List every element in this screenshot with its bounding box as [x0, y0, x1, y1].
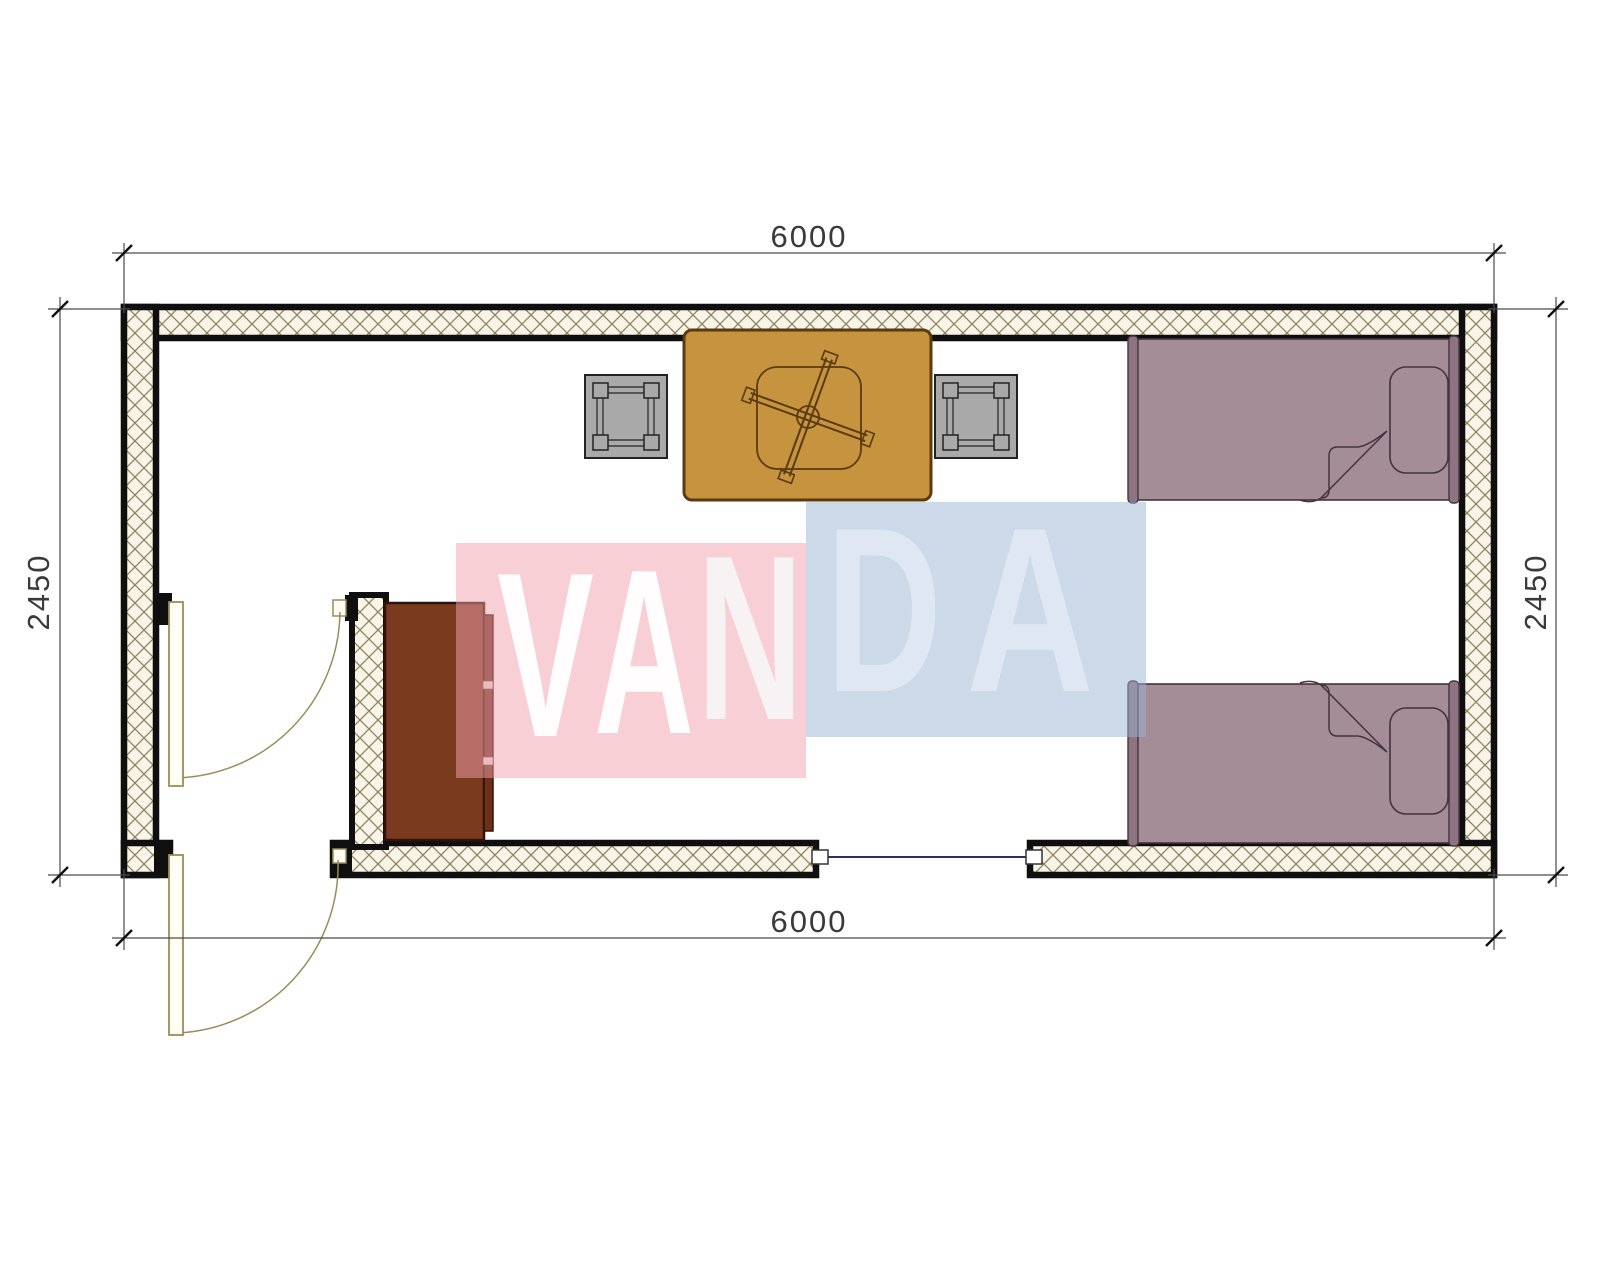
bed-top-headboard	[1449, 336, 1459, 503]
wall-right	[1462, 307, 1494, 875]
stool-right	[935, 375, 1017, 458]
floor-plan-canvas: V A N D A 6000 6000 2450 2450	[0, 0, 1600, 1280]
window	[812, 850, 1042, 864]
bed-top	[1128, 336, 1459, 503]
interior-door	[169, 602, 340, 786]
bed-bottom	[1128, 681, 1459, 846]
door-jambs	[154, 593, 358, 875]
table-top	[684, 330, 931, 500]
partition-wall	[352, 595, 386, 847]
watermark-letter: A	[966, 478, 1094, 741]
window-jamb-left	[812, 850, 828, 864]
watermark-letter: A	[594, 520, 694, 783]
bed-bottom-pillow	[1390, 708, 1448, 814]
wall-bottom-right-segment	[1030, 843, 1494, 875]
exterior-door-swing-arc	[177, 860, 338, 1033]
stool-left	[585, 375, 667, 458]
jamb-partition-top	[345, 595, 358, 621]
dimension-top-label: 6000	[771, 219, 848, 254]
watermark-logo: V A N D A	[456, 478, 1146, 786]
door-frame-blocks	[333, 600, 346, 863]
watermark-letter: D	[826, 478, 942, 741]
dimension-bottom-label: 6000	[771, 904, 848, 939]
interior-door-swing-arc	[176, 612, 340, 778]
dimension-left-label: 2450	[21, 554, 56, 631]
bed-top-pillow	[1390, 367, 1448, 473]
wall-left	[124, 307, 156, 875]
table	[684, 330, 931, 500]
wall-bottom-mid-segment	[333, 843, 816, 875]
dimension-right-label: 2450	[1518, 554, 1553, 631]
watermark-letter: V	[497, 523, 594, 786]
interior-door-leaf	[169, 602, 183, 786]
bed-top-footboard	[1128, 336, 1138, 503]
watermark-letter: N	[697, 506, 803, 769]
exterior-door	[169, 855, 338, 1035]
window-jamb-right	[1026, 850, 1042, 864]
exterior-door-leaf	[169, 855, 183, 1035]
bed-bottom-headboard	[1449, 681, 1459, 846]
